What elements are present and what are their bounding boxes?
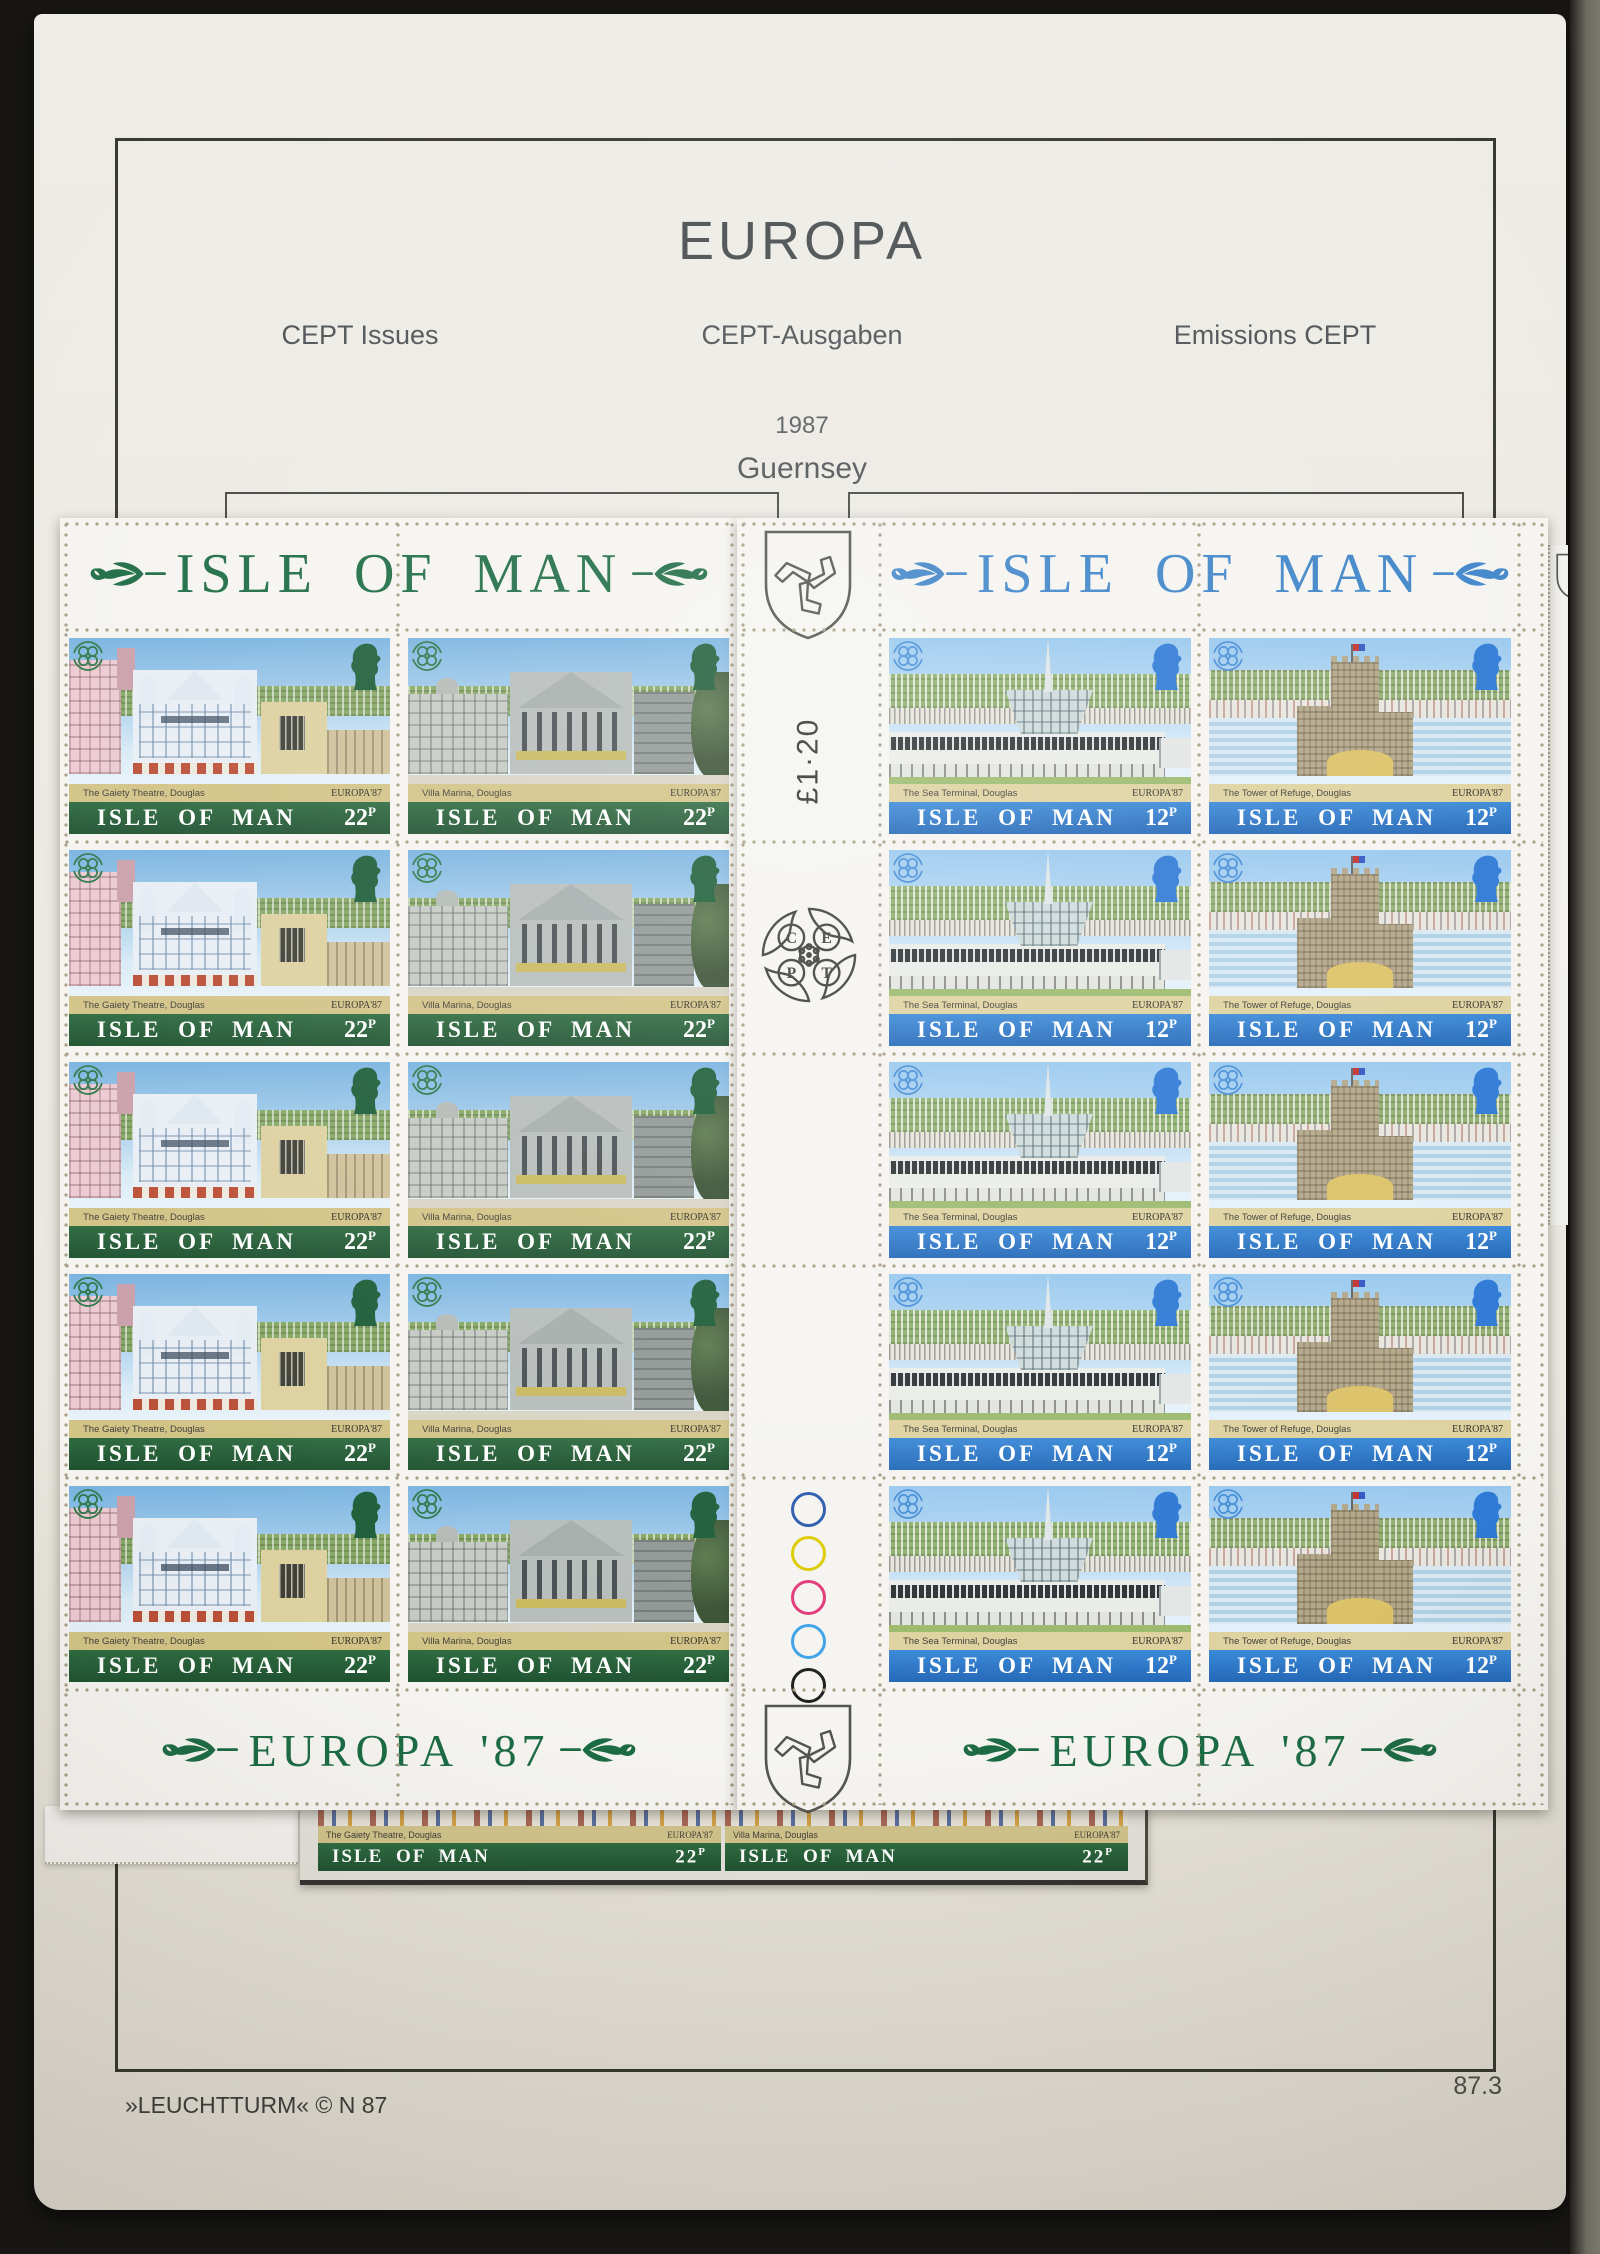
stamp-image — [1209, 638, 1511, 784]
stamp-value-band: ISLE OF MAN 12P — [1209, 802, 1511, 834]
awnings — [133, 763, 257, 774]
tower-of-refuge-castle — [1297, 1510, 1413, 1624]
gaiety-theatre-building — [133, 882, 257, 986]
face-value: 22P — [1082, 1846, 1114, 1868]
stamp-caption-strip: The Tower of Refuge, Douglas EUROPA'87 — [1209, 996, 1511, 1014]
stamp-value-band: ISLE OF MAN 12P — [889, 1014, 1191, 1046]
subtitle-english: CEPT Issues — [281, 320, 438, 351]
value-band: ISLE OF MAN 22P — [725, 1843, 1128, 1871]
lawn — [889, 989, 1191, 996]
stamp-22p-villa-marina: Villa Marina, Douglas EUROPA'87 ISLE OF … — [399, 630, 738, 842]
publisher-credit: »LEUCHTTURM« © N 87 — [125, 2092, 387, 2119]
tower-of-refuge-castle — [1297, 662, 1413, 776]
europa-mark: EUROPA'87 — [670, 1212, 721, 1223]
marquee — [516, 1599, 626, 1608]
miniature-sheet-12p[interactable]: £1·20 — [737, 518, 1548, 1810]
svg-text:E: E — [821, 930, 831, 947]
face-value: 12P — [1145, 1016, 1177, 1044]
stamp-image — [69, 1486, 390, 1632]
gaiety-theatre-building — [133, 1518, 257, 1622]
sand-mound — [1327, 1174, 1393, 1200]
perforation-line — [730, 523, 734, 1805]
lawn — [889, 777, 1191, 784]
ornament-right — [560, 1735, 644, 1765]
cept-emblem-icon — [893, 641, 923, 671]
face-value: 22P — [344, 804, 376, 832]
lawn — [889, 1413, 1191, 1420]
stamp-12p-sea-terminal: The Sea Terminal, Douglas EUROPA'87 ISLE… — [880, 842, 1200, 1054]
windows — [139, 704, 251, 758]
paper-edge-under-sheet — [45, 1806, 298, 1864]
grey-building — [634, 1116, 694, 1198]
country-name: ISLE OF MAN — [1237, 1229, 1436, 1255]
stamp-value-band: ISLE OF MAN 22P — [69, 802, 390, 834]
stamp-caption-strip: The Gaiety Theatre, Douglas EUROPA'87 — [69, 1420, 390, 1438]
page-number: 87.3 — [1418, 2072, 1502, 2101]
perforation-line — [65, 840, 733, 844]
terminal-building — [889, 1156, 1165, 1188]
queen-head — [683, 642, 721, 692]
queen-head-icon — [1145, 854, 1183, 904]
country-name: ISLE OF MAN — [97, 1441, 296, 1467]
villa-marina-hall — [510, 1308, 632, 1410]
stamp-22p-villa-marina: Villa Marina, Douglas EUROPA'87 ISLE OF … — [399, 1266, 738, 1478]
miniature-sheet-22p[interactable]: ISLE OF MAN — [60, 518, 738, 1810]
villa-marina-hall — [510, 1520, 632, 1622]
europa-mark: EUROPA'87 — [1452, 1000, 1503, 1011]
queen-head-icon — [683, 642, 721, 692]
queen-head-icon — [1465, 854, 1503, 904]
europa-mark: EUROPA'87 — [1074, 1830, 1120, 1840]
cept-emblem — [412, 1489, 442, 1519]
album-page: EUROPA CEPT Issues CEPT-Ausgaben Emissio… — [34, 14, 1566, 2210]
country-name: ISLE OF MAN — [1237, 805, 1436, 831]
ornament-left — [883, 559, 967, 589]
europa-mark: EUROPA'87 — [331, 788, 382, 799]
cept-emblem-icon — [73, 1065, 103, 1095]
gable — [167, 670, 223, 700]
stamp-12p-tower-of-refuge: The Tower of Refuge, Douglas EUROPA'87 I… — [1200, 1054, 1520, 1266]
queen-head-icon — [683, 1490, 721, 1540]
cept-emblem-icon — [1213, 1489, 1243, 1519]
flourish-ornament-icon — [1361, 1735, 1445, 1765]
perforation-line — [396, 523, 400, 1805]
queen-head — [1465, 642, 1503, 692]
pink-building — [69, 1508, 121, 1622]
flourish-ornament-icon — [560, 1735, 644, 1765]
europa-mark: EUROPA'87 — [1452, 1636, 1503, 1647]
cept-emblem-icon — [1213, 1065, 1243, 1095]
stamp-image — [408, 638, 729, 784]
strip-stamp-bottom: The Gaiety Theatre, Douglas EUROPA'87 IS… — [318, 1810, 721, 1872]
stamp-image — [1209, 850, 1511, 996]
traffic-light-yellow — [791, 1536, 826, 1571]
stamp-image — [889, 1062, 1191, 1208]
cept-emblem — [893, 853, 923, 883]
perforation-line — [1517, 523, 1521, 1805]
awnings — [133, 1399, 257, 1410]
villa-marina-hall — [510, 672, 632, 774]
promenade — [408, 1199, 729, 1208]
caption: The Gaiety Theatre, Douglas — [83, 1000, 205, 1011]
stamp-12p-tower-of-refuge: The Tower of Refuge, Douglas EUROPA'87 I… — [1200, 1266, 1520, 1478]
stamp-22p-gaiety-theatre: The Gaiety Theatre, Douglas EUROPA'87 IS… — [60, 1054, 399, 1266]
cept-emblem-icon — [412, 1277, 442, 1307]
queen-head — [344, 1490, 382, 1540]
stamp-22p-villa-marina: Villa Marina, Douglas EUROPA'87 ISLE OF … — [399, 842, 738, 1054]
side-building — [408, 1542, 508, 1622]
theatre-sign — [161, 716, 229, 723]
gable — [167, 1306, 223, 1336]
face-value: 12P — [1145, 1228, 1177, 1256]
caption: The Sea Terminal, Douglas — [903, 788, 1017, 799]
caption: The Tower of Refuge, Douglas — [1223, 1636, 1351, 1647]
cept-emblem — [412, 1277, 442, 1307]
pink-building — [69, 1296, 121, 1410]
stamp-value-band: ISLE OF MAN 12P — [889, 1650, 1191, 1682]
yellow-building — [261, 1338, 327, 1410]
awnings — [133, 975, 257, 986]
perforation-line — [742, 1476, 1543, 1480]
sand-mound — [1327, 1598, 1393, 1624]
stamp-caption-strip: Villa Marina, Douglas EUROPA'87 — [408, 996, 729, 1014]
queen-head-icon — [344, 1490, 382, 1540]
country-name: ISLE OF MAN — [917, 1017, 1116, 1043]
queen-head-icon — [683, 1066, 721, 1116]
promenade — [408, 1623, 729, 1632]
cept-emblem — [73, 853, 103, 883]
stamp-caption-strip: The Sea Terminal, Douglas EUROPA'87 — [889, 1632, 1191, 1650]
europa-mark: EUROPA'87 — [331, 1212, 382, 1223]
shops — [327, 1154, 390, 1198]
yellow-building — [261, 702, 327, 774]
queen-head — [1465, 1066, 1503, 1116]
perforation-line — [742, 522, 1543, 526]
perforation-line — [741, 523, 745, 1805]
face-value: 12P — [1465, 1228, 1497, 1256]
traffic-light-blue — [791, 1492, 826, 1527]
traffic-light-cyan — [791, 1624, 826, 1659]
triskelion-shield-top — [756, 526, 860, 626]
perforation-line — [1197, 523, 1201, 1805]
country-name: ISLE OF MAN — [97, 1229, 296, 1255]
sand-mound — [1327, 962, 1393, 988]
cept-emblem-icon — [412, 1489, 442, 1519]
value-band: ISLE OF MAN 22P — [318, 1843, 721, 1871]
stamp-image — [1209, 1062, 1511, 1208]
lawn — [889, 1201, 1191, 1208]
perforation-line — [65, 628, 733, 632]
queen-head — [1145, 642, 1183, 692]
caption: The Tower of Refuge, Douglas — [1223, 1000, 1351, 1011]
theatre-sign — [161, 1140, 229, 1147]
theatre-sign — [161, 1352, 229, 1359]
caption: The Tower of Refuge, Douglas — [1223, 1424, 1351, 1435]
stamp-image — [408, 1486, 729, 1632]
cept-emblem — [73, 1277, 103, 1307]
awnings — [133, 1611, 257, 1622]
shops — [327, 942, 390, 986]
terminal-tower — [1005, 1326, 1093, 1370]
stamp-22p-gaiety-theatre: The Gaiety Theatre, Douglas EUROPA'87 IS… — [60, 1478, 399, 1690]
face-value: 12P — [1145, 804, 1177, 832]
europa-mark: EUROPA'87 — [331, 1424, 382, 1435]
face-value: 12P — [1465, 1440, 1497, 1468]
flourish-ornament-icon — [883, 559, 967, 589]
europa-mark: EUROPA'87 — [1132, 1636, 1183, 1647]
country-name: ISLE OF MAN — [97, 1017, 296, 1043]
stamp-value-band: ISLE OF MAN 22P — [69, 1226, 390, 1258]
stamp-caption-strip: Villa Marina, Douglas EUROPA'87 — [408, 1208, 729, 1226]
lawn — [889, 1625, 1191, 1632]
windows — [139, 1340, 251, 1394]
perforation-line — [65, 1802, 733, 1806]
cept-emblem — [893, 1489, 923, 1519]
awnings — [133, 1187, 257, 1198]
stamp-value-band: ISLE OF MAN 12P — [1209, 1226, 1511, 1258]
country-name: ISLE OF MAN — [436, 1653, 635, 1679]
terminal-building — [889, 732, 1165, 764]
tower-of-refuge-castle — [1297, 1086, 1413, 1200]
side-building — [408, 1118, 508, 1198]
ornament-left — [154, 1735, 238, 1765]
gaiety-theatre-building — [133, 670, 257, 774]
stamp-caption-strip: Villa Marina, Douglas EUROPA'87 — [408, 1420, 729, 1438]
queen-head-icon — [683, 1278, 721, 1328]
caption: The Tower of Refuge, Douglas — [1223, 1212, 1351, 1223]
queen-head-icon — [1145, 1066, 1183, 1116]
cept-emblem-icon — [412, 853, 442, 883]
mounted-stamp-strip[interactable]: The Gaiety Theatre, Douglas EUROPA'87 IS… — [300, 1806, 1148, 1885]
face-value: 22P — [344, 1440, 376, 1468]
cept-emblem — [893, 641, 923, 671]
marquee — [516, 1387, 626, 1396]
sheet-face-value-text: £1·20 — [791, 718, 825, 805]
perforation-line — [878, 523, 882, 1805]
stamp-value-band: ISLE OF MAN 12P — [889, 802, 1191, 834]
caption: The Gaiety Theatre, Douglas — [326, 1830, 441, 1840]
terminal-building — [889, 1580, 1165, 1612]
queen-head-icon — [1145, 1490, 1183, 1540]
triskelion-shield-icon — [756, 526, 860, 644]
cept-emblem-icon — [412, 641, 442, 671]
flourish-ornament-icon — [82, 559, 166, 589]
stamp-12p-sea-terminal: The Sea Terminal, Douglas EUROPA'87 ISLE… — [880, 1478, 1200, 1690]
grey-building — [634, 692, 694, 774]
stamp-22p-villa-marina: Villa Marina, Douglas EUROPA'87 ISLE OF … — [399, 1054, 738, 1266]
perforation-line — [742, 1688, 1543, 1692]
issue-year: 1987 — [775, 412, 828, 440]
perforation-line — [742, 840, 1543, 844]
stamp-caption-strip: The Gaiety Theatre, Douglas EUROPA'87 — [69, 784, 390, 802]
country-name: ISLE OF MAN — [436, 1017, 635, 1043]
villa-marina-hall — [510, 1096, 632, 1198]
strip-stamp-bottom: Villa Marina, Douglas EUROPA'87 ISLE OF … — [725, 1810, 1128, 1872]
cept-emblem — [412, 853, 442, 883]
queen-head-icon — [344, 854, 382, 904]
side-building — [408, 694, 508, 774]
grey-building — [634, 904, 694, 986]
dome — [436, 1526, 458, 1542]
ornament-right — [632, 559, 716, 589]
ornament-left — [955, 1735, 1039, 1765]
queen-head-icon — [344, 1066, 382, 1116]
queen-head-icon — [683, 854, 721, 904]
stamp-image — [408, 1062, 729, 1208]
subtitle-french: Emissions CEPT — [1174, 320, 1377, 351]
traffic-light-black — [791, 1668, 826, 1703]
dome — [436, 1102, 458, 1118]
face-value: 22P — [683, 1652, 715, 1680]
country-name: ISLE OF MAN — [332, 1846, 490, 1868]
flourish-ornament-icon — [632, 559, 716, 589]
shops — [327, 730, 390, 774]
country-heading: Guernsey — [737, 452, 867, 486]
pink-building — [69, 1084, 121, 1198]
perforation-line — [65, 1264, 733, 1268]
gable — [167, 882, 223, 912]
traffic-light-magenta — [791, 1580, 826, 1615]
caption-strip: The Gaiety Theatre, Douglas EUROPA'87 — [318, 1826, 721, 1843]
queen-head — [1465, 1278, 1503, 1328]
queen-head — [344, 854, 382, 904]
caption: The Sea Terminal, Douglas — [903, 1212, 1017, 1223]
cept-emblem-icon — [893, 1065, 923, 1095]
country-name: ISLE OF MAN — [436, 1441, 635, 1467]
ornament-right — [1361, 1735, 1445, 1765]
country-name: ISLE OF MAN — [1237, 1017, 1436, 1043]
stamp-caption-strip: The Sea Terminal, Douglas EUROPA'87 — [889, 1420, 1191, 1438]
grey-building — [634, 1328, 694, 1410]
country-name: ISLE OF MAN — [1237, 1653, 1436, 1679]
side-building — [408, 1330, 508, 1410]
queen-head — [1145, 854, 1183, 904]
stamp-value-band: ISLE OF MAN 22P — [69, 1650, 390, 1682]
europa-mark: EUROPA'87 — [331, 1000, 382, 1011]
queen-head — [683, 1066, 721, 1116]
perforation-line — [742, 628, 1543, 632]
face-value: 12P — [1145, 1440, 1177, 1468]
stamp-22p-gaiety-theatre: The Gaiety Theatre, Douglas EUROPA'87 IS… — [60, 1266, 399, 1478]
country-name: ISLE OF MAN — [917, 805, 1116, 831]
caption: The Sea Terminal, Douglas — [903, 1636, 1017, 1647]
caption: The Gaiety Theatre, Douglas — [83, 1636, 205, 1647]
stamp-12p-sea-terminal: The Sea Terminal, Douglas EUROPA'87 ISLE… — [880, 630, 1200, 842]
stamp-value-band: ISLE OF MAN 12P — [1209, 1650, 1511, 1682]
cept-emblem — [1213, 1065, 1243, 1095]
printer-traffic-lights — [737, 1492, 880, 1703]
queen-head-icon — [1465, 642, 1503, 692]
tower-of-refuge-castle — [1297, 1298, 1413, 1412]
cept-emblem — [73, 641, 103, 671]
stamp-value-band: ISLE OF MAN 22P — [69, 1014, 390, 1046]
country-name: ISLE OF MAN — [917, 1229, 1116, 1255]
stamp-image — [1209, 1274, 1511, 1420]
sheet-face-value: £1·20 — [737, 686, 880, 836]
queen-head-icon — [1145, 642, 1183, 692]
cept-emblem — [893, 1065, 923, 1095]
perforation-line — [1540, 523, 1544, 1805]
stamp-value-band: ISLE OF MAN 22P — [408, 1226, 729, 1258]
stamp-caption-strip: The Tower of Refuge, Douglas EUROPA'87 — [1209, 1208, 1511, 1226]
stamp-value-band: ISLE OF MAN 12P — [1209, 1014, 1511, 1046]
theatre-sign — [161, 928, 229, 935]
stamp-caption-strip: The Sea Terminal, Douglas EUROPA'87 — [889, 996, 1191, 1014]
cept-emblem — [73, 1489, 103, 1519]
stamp-image — [889, 850, 1191, 996]
europa-mark: EUROPA'87 — [1132, 1424, 1183, 1435]
stamp-caption-strip: Villa Marina, Douglas EUROPA'87 — [408, 784, 729, 802]
gable — [167, 1518, 223, 1548]
stamp-12p-sea-terminal: The Sea Terminal, Douglas EUROPA'87 ISLE… — [880, 1266, 1200, 1478]
stamp-image — [69, 1274, 390, 1420]
promenade — [408, 775, 729, 784]
face-value: 22P — [344, 1228, 376, 1256]
stamp-image — [889, 1486, 1191, 1632]
stamp-22p-villa-marina: Villa Marina, Douglas EUROPA'87 ISLE OF … — [399, 1478, 738, 1690]
perforation-line — [742, 1052, 1543, 1056]
stamp-caption-strip: Villa Marina, Douglas EUROPA'87 — [408, 1632, 729, 1650]
promenade — [408, 987, 729, 996]
queen-head — [683, 1278, 721, 1328]
stamp-12p-tower-of-refuge: The Tower of Refuge, Douglas EUROPA'87 I… — [1200, 842, 1520, 1054]
europa-mark: EUROPA'87 — [1452, 1212, 1503, 1223]
queen-head — [683, 854, 721, 904]
cept-emblem-icon — [893, 1489, 923, 1519]
cept-emblem-icon — [1213, 1277, 1243, 1307]
europa-mark: EUROPA'87 — [670, 1000, 721, 1011]
stamp-caption-strip: The Tower of Refuge, Douglas EUROPA'87 — [1209, 784, 1511, 802]
photo-edge-strip — [1570, 0, 1600, 2254]
caption: The Gaiety Theatre, Douglas — [83, 1424, 205, 1435]
queen-head — [683, 1490, 721, 1540]
gaiety-theatre-building — [133, 1094, 257, 1198]
perforation-line — [65, 1476, 733, 1480]
face-value: 22P — [344, 1652, 376, 1680]
ship — [1159, 738, 1191, 768]
terminal-tower — [1005, 690, 1093, 734]
svg-text:C: C — [786, 930, 797, 947]
queen-head-icon — [1465, 1066, 1503, 1116]
building-windows — [318, 1810, 721, 1826]
stamp-value-band: ISLE OF MAN 22P — [69, 1438, 390, 1470]
stamp-image — [408, 850, 729, 996]
gable — [518, 1096, 624, 1132]
dome — [436, 1314, 458, 1330]
stamp-12p-tower-of-refuge: The Tower of Refuge, Douglas EUROPA'87 I… — [1200, 1478, 1520, 1690]
cept-emblem — [412, 641, 442, 671]
caption: Villa Marina, Douglas — [422, 788, 512, 799]
terminal-building — [889, 1368, 1165, 1400]
theatre-sign — [161, 1564, 229, 1571]
queen-head-icon — [344, 642, 382, 692]
stamp-caption-strip: The Sea Terminal, Douglas EUROPA'87 — [889, 784, 1191, 802]
queen-head — [1145, 1066, 1183, 1116]
gable — [518, 884, 624, 920]
caption: The Tower of Refuge, Douglas — [1223, 788, 1351, 799]
face-value: 22P — [683, 1228, 715, 1256]
flag — [1351, 856, 1353, 874]
photo-of-stamp-album-page: EUROPA CEPT Issues CEPT-Ausgaben Emissio… — [0, 0, 1600, 2254]
stamp-caption-strip: The Tower of Refuge, Douglas EUROPA'87 — [1209, 1632, 1511, 1650]
stamp-image — [69, 638, 390, 784]
europa-mark: EUROPA'87 — [1132, 788, 1183, 799]
stamp-caption-strip: The Sea Terminal, Douglas EUROPA'87 — [889, 1208, 1191, 1226]
caption: Villa Marina, Douglas — [422, 1636, 512, 1647]
face-value: 22P — [683, 1440, 715, 1468]
perforation-line — [65, 1052, 733, 1056]
stamp-value-band: ISLE OF MAN 12P — [889, 1226, 1191, 1258]
